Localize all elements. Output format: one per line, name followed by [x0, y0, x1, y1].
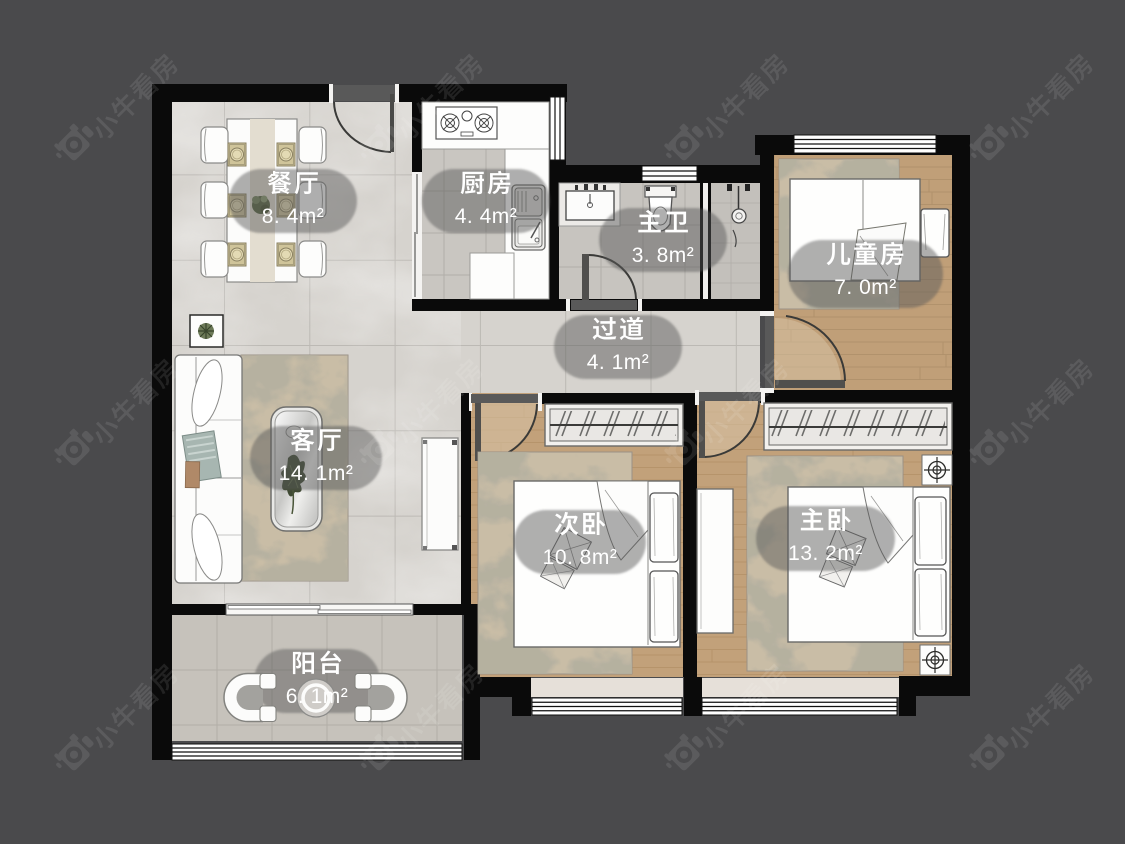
svg-text:13. 2m²: 13. 2m² [788, 542, 863, 565]
svg-text:4. 4m²: 4. 4m² [455, 205, 518, 228]
svg-text:8. 4m²: 8. 4m² [262, 205, 325, 228]
svg-text:6. 1m²: 6. 1m² [286, 685, 349, 708]
svg-text:7. 0m²: 7. 0m² [834, 276, 897, 299]
svg-text:4. 1m²: 4. 1m² [587, 351, 650, 374]
svg-text:3. 8m²: 3. 8m² [632, 244, 695, 267]
svg-text:10. 8m²: 10. 8m² [543, 546, 618, 569]
svg-text:14. 1m²: 14. 1m² [279, 462, 354, 485]
